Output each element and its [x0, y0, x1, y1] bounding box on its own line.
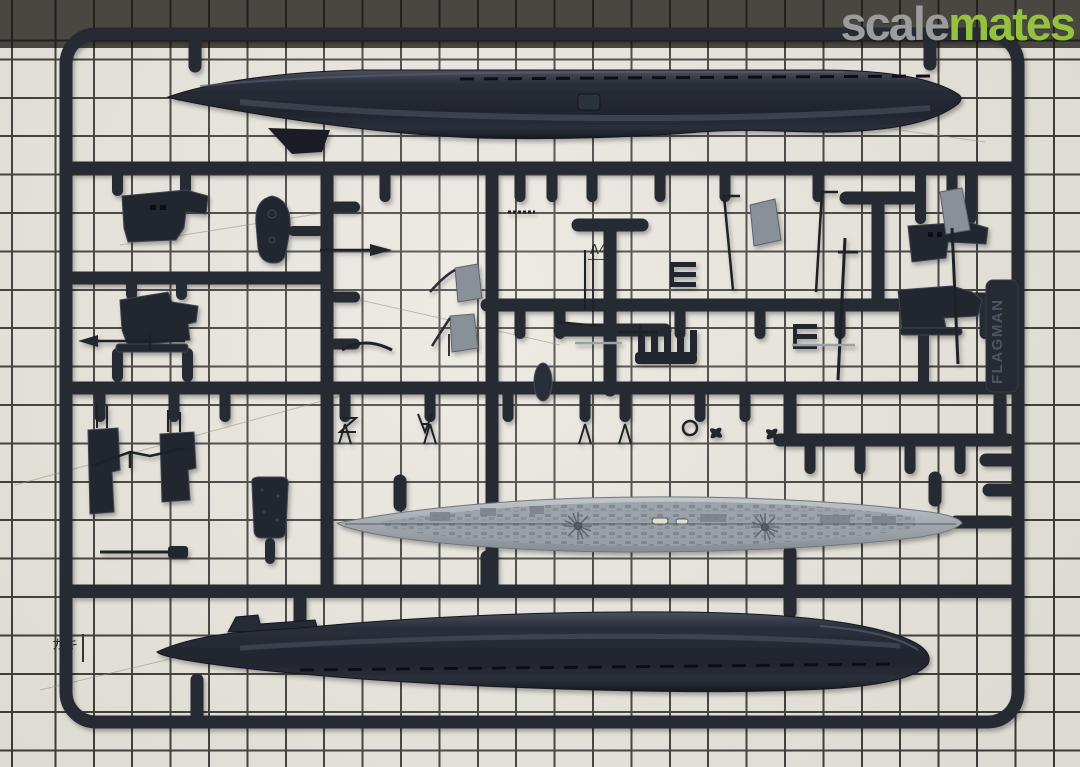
conning-tower-half-1 — [122, 190, 208, 242]
cone-tip-2 — [78, 335, 98, 347]
conning-tower-half-2 — [120, 292, 198, 346]
brand-tab-text: FLAGMAN — [989, 299, 1006, 385]
fairing-part — [256, 196, 290, 263]
conning-tower-parts — [116, 190, 988, 352]
periscope-mast-parts — [92, 192, 958, 552]
deck-sunburst-2 — [751, 513, 779, 541]
deck-sunburst-1 — [564, 512, 592, 540]
float-part — [534, 363, 552, 401]
deck-part — [337, 497, 962, 552]
scalemates-watermark: scalemates — [841, 2, 1074, 46]
watermark-text-scale: scale — [841, 0, 949, 50]
sprue-illustration: FLAGMAN — [0, 0, 1080, 767]
deck-slot — [652, 518, 668, 524]
watermark-text-mates: mates — [948, 0, 1074, 50]
deck-slot-2 — [676, 519, 688, 524]
side-plate-parts — [88, 404, 196, 514]
comb-part — [635, 330, 697, 364]
ring-part — [683, 421, 697, 435]
barrel-base — [168, 546, 188, 558]
model-kit-sprue-photo: A4 B5 ガキ — [0, 0, 1080, 767]
lower-hull-half-part — [157, 612, 929, 692]
sprue-gate-stubs — [95, 168, 991, 474]
brand-tab: FLAGMAN — [986, 280, 1018, 392]
upper-hull-half-part — [168, 70, 961, 154]
gates-upper-hull — [195, 38, 930, 66]
cone-tip — [370, 244, 392, 256]
gates-right-rail — [986, 460, 1012, 490]
runner-right-links — [790, 388, 1000, 440]
riveted-part — [252, 477, 289, 564]
conning-tower-half-4 — [898, 286, 982, 330]
